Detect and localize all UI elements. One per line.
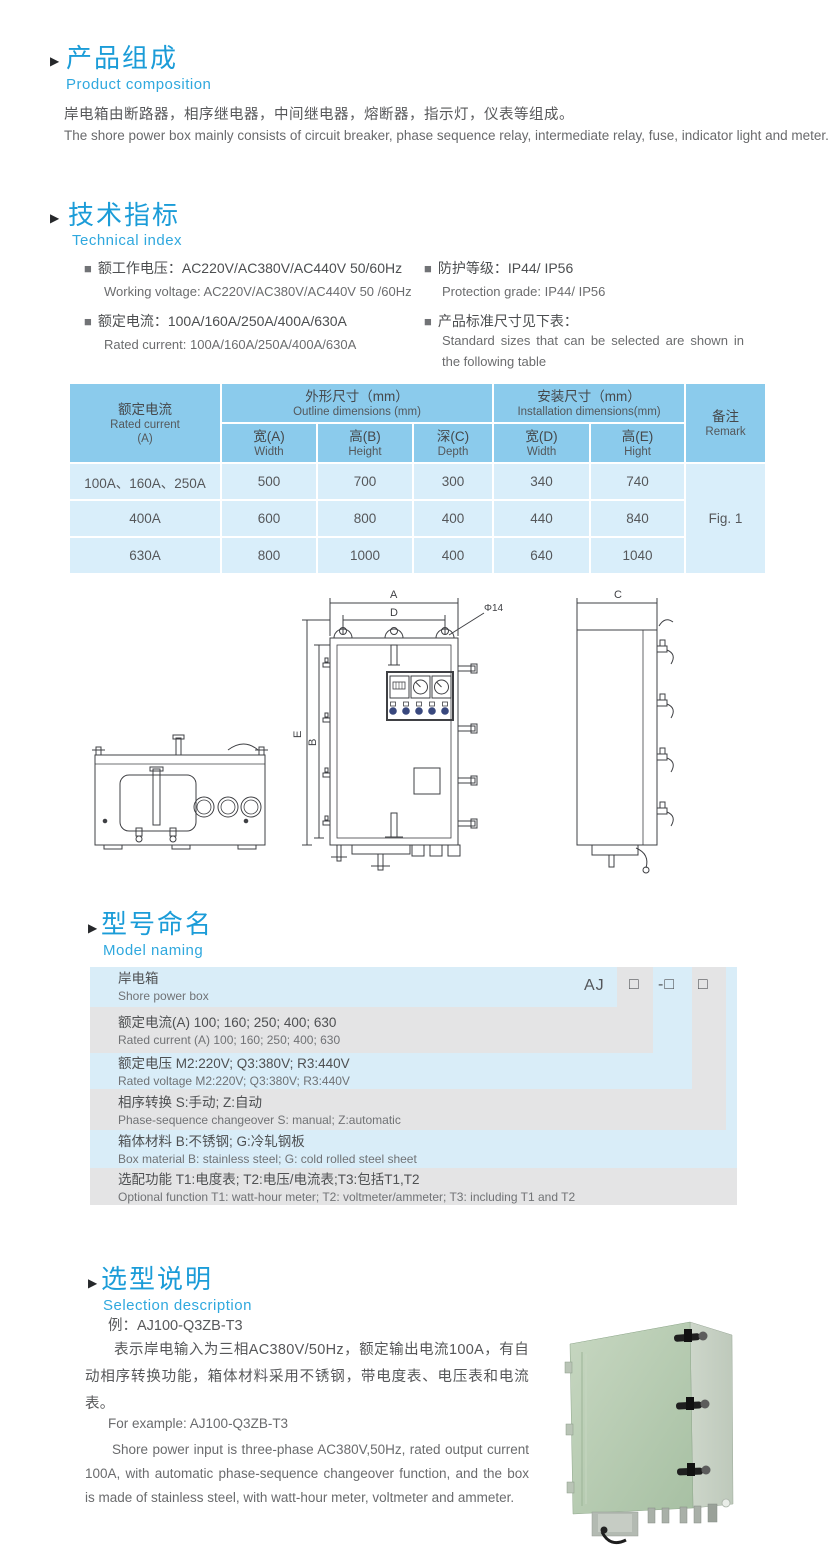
naming-row-rated-voltage: 额定电压 M2:220V; Q3:380V; R3:440VRated volt… [90, 1053, 692, 1089]
hinge-tab [565, 1362, 572, 1373]
dim-c-label: C [614, 589, 622, 601]
selection-body-zh: 表示岸电输入为三相AC380V/50Hz，额定输出电流100A，有自动相序转换功… [85, 1337, 529, 1418]
spec-rated-current-en: Rated current: 100A/160A/250A/400A/630A [104, 337, 356, 352]
model-code-prefix: AJ [584, 977, 605, 995]
dim-e-label: E [292, 731, 304, 738]
model-code-box-current: □ [629, 976, 640, 994]
hole-diameter-label: Φ14 [484, 603, 504, 614]
spec-protection-grade-zh: ■防护等级：IP44/ IP56 [424, 258, 573, 278]
composition-body-en: The shore power box mainly consists of c… [64, 128, 829, 143]
front-view: A D Φ14 E B [292, 589, 504, 870]
side-view: C [577, 589, 673, 873]
table-row: 630A 800 1000 400 640 1040 [69, 537, 766, 574]
model-code-box-middle: -□ [658, 976, 675, 994]
spec-working-voltage-zh: ■额工作电压：AC220V/AC380V/AC440V 50/60Hz [84, 258, 402, 278]
remark-value: Fig. 1 [685, 463, 766, 574]
spec-working-voltage-en: Working voltage: AC220V/AC380V/AC440V 50… [104, 284, 412, 299]
col-installation-group-header: 安装尺寸（mm） Installation dimensions(mm) [493, 383, 685, 423]
naming-row-rated-current: 额定电流(A) 100; 160; 250; 400; 630Rated cur… [90, 1007, 653, 1053]
table-row: 100A、160A、250A 500 700 300 340 740 Fig. … [69, 463, 766, 500]
model-naming-table: 岸电箱Shore power box 额定电流(A) 100; 160; 250… [90, 967, 737, 1205]
selection-example-zh: 例：AJ100-Q3ZB-T3 [108, 1314, 243, 1335]
naming-row-product: 岸电箱Shore power box [90, 967, 617, 1007]
selection-example-en: For example: AJ100-Q3ZB-T3 [108, 1416, 288, 1431]
selection-title: 选型说明 [101, 1265, 213, 1294]
hinge-tab [566, 1424, 573, 1435]
composition-title: 产品组成 [66, 44, 178, 73]
control-panel [387, 672, 453, 720]
spec-protection-grade-en: Protection grade: IP44/ IP56 [442, 284, 605, 299]
spec-standard-sizes-zh: ■产品标准尺寸见下表： [424, 311, 578, 331]
col-remark-header: 备注 Remark [685, 383, 766, 463]
green-box [565, 1322, 733, 1543]
col-outline-group-header: 外形尺寸（mm） Outline dimensions (mm) [221, 383, 493, 423]
selection-body-en: Shore power input is three-phase AC380V,… [85, 1438, 529, 1510]
naming-subtitle: Model naming [103, 942, 203, 959]
technical-drawing: A D Φ14 E B [80, 578, 770, 888]
section-arrow-icon: ▶ [50, 212, 59, 224]
technical-subtitle: Technical index [72, 232, 182, 249]
naming-row-optional-function: 选配功能 T1:电度表; T2:电压/电流表;T3:包括T1,T2Optiona… [90, 1168, 737, 1205]
selection-subtitle: Selection description [103, 1297, 252, 1314]
section-arrow-icon: ▶ [50, 55, 59, 67]
composition-body-zh: 岸电箱由断路器，相序继电器，中间继电器，熔断器，指示灯，仪表等组成。 [64, 103, 574, 124]
col-height-b-header: 高(B)Height [317, 423, 413, 463]
col-height-e-header: 高(E)Hight [590, 423, 685, 463]
col-depth-c-header: 深(C)Depth [413, 423, 493, 463]
section-arrow-icon: ▶ [88, 922, 97, 934]
product-photo [540, 1300, 810, 1568]
dim-d-label: D [390, 607, 398, 619]
indicator-lights [389, 702, 449, 715]
bottom-view [92, 735, 268, 849]
square-bullet-icon: ■ [84, 314, 92, 329]
catalog-page: ▶ 产品组成 Product composition 岸电箱由断路器，相序继电器… [0, 0, 830, 1568]
hinge-tab [567, 1482, 574, 1493]
col-width-a-header: 宽(A)Width [221, 423, 317, 463]
dimension-table: 额定电流 Rated current (A) 外形尺寸（mm） Outline … [68, 382, 767, 575]
naming-title: 型号命名 [101, 910, 213, 939]
naming-row-box-material: 箱体材料 B:不锈钢; G:冷轧钢板Box material B: stainl… [90, 1130, 737, 1168]
spec-rated-current-zh: ■额定电流：100A/160A/250A/400A/630A [84, 311, 347, 331]
hinge-marks [657, 640, 673, 826]
dim-b-label: B [307, 739, 319, 746]
square-bullet-icon: ■ [424, 261, 432, 276]
technical-title: 技术指标 [68, 201, 180, 230]
col-width-d-header: 宽(D)Width [493, 423, 590, 463]
code-column-band [726, 967, 737, 1130]
table-row: 400A 600 800 400 440 840 [69, 500, 766, 537]
section-arrow-icon: ▶ [88, 1277, 97, 1289]
spec-standard-sizes-en: Standard sizes that can be selected are … [442, 330, 744, 372]
composition-subtitle: Product composition [66, 76, 211, 93]
dim-a-label: A [390, 589, 398, 601]
naming-row-phase-changeover: 相序转换 S:手动; Z:自动Phase-sequence changeover… [90, 1089, 726, 1130]
square-bullet-icon: ■ [424, 314, 432, 329]
col-rated-current-header: 额定电流 Rated current (A) [69, 383, 221, 463]
model-code-box-optional: □ [698, 976, 709, 994]
square-bullet-icon: ■ [84, 261, 92, 276]
